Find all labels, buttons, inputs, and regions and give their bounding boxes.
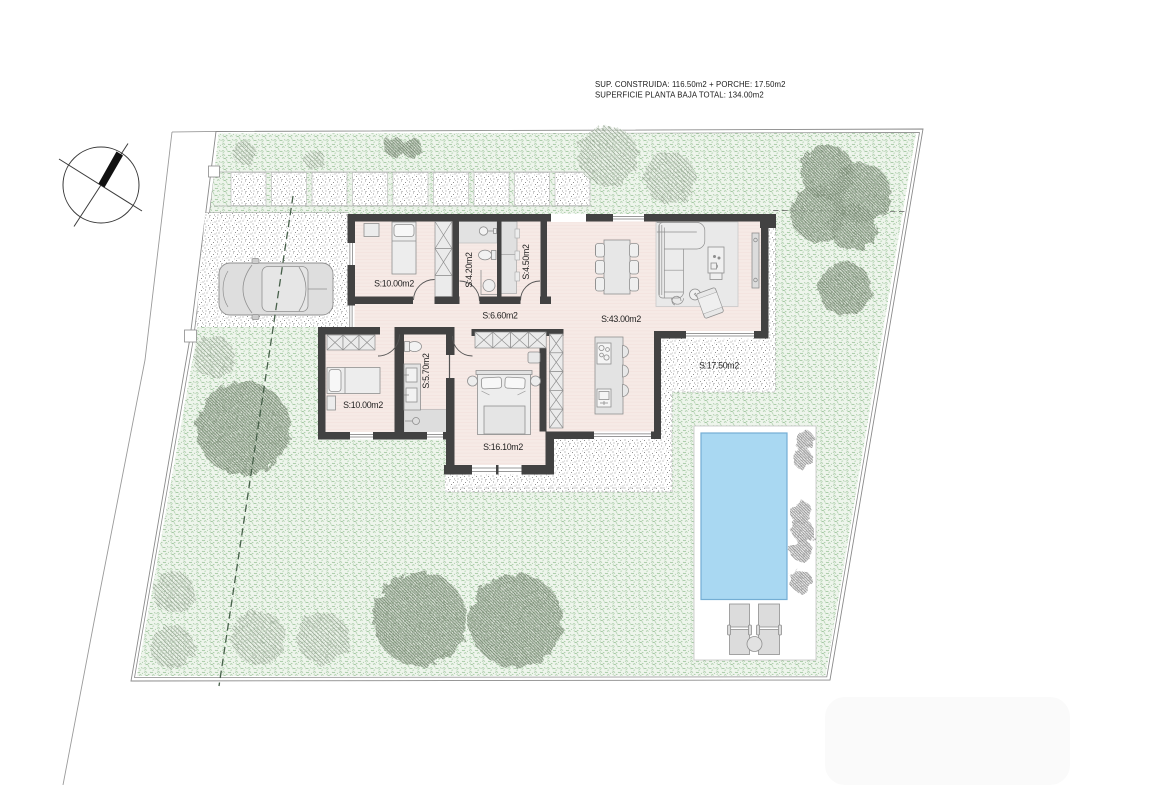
svg-text:S:4.20m2: S:4.20m2 [464,252,474,288]
svg-text:S:10.00m2: S:10.00m2 [343,400,383,410]
svg-text:S:16.10m2: S:16.10m2 [483,442,523,452]
svg-text:SUP. CONSTRUIDA: 116.50m2 + PO: SUP. CONSTRUIDA: 116.50m2 + PORCHE: 17.5… [595,80,786,89]
svg-text:S:43.00m2: S:43.00m2 [601,314,641,324]
svg-text:S:6.60m2: S:6.60m2 [482,311,518,321]
svg-text:S:4.50m2: S:4.50m2 [521,244,531,280]
svg-text:S:5.70m2: S:5.70m2 [421,353,431,389]
svg-text:S:10.00m2: S:10.00m2 [374,279,414,289]
svg-text:S:17.50m2: S:17.50m2 [699,361,739,371]
svg-text:SUPERFICIE PLANTA BAJA TOTAL:: SUPERFICIE PLANTA BAJA TOTAL: 134.00m2 [595,91,764,100]
